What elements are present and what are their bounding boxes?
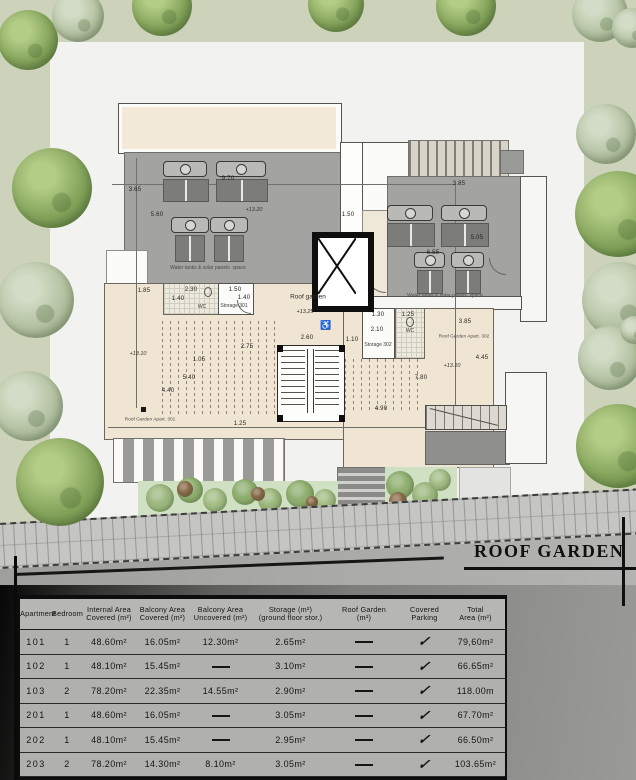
- roof-right-block: [500, 150, 524, 174]
- table-cell: [329, 735, 399, 745]
- check-icon: ✓: [417, 633, 432, 650]
- table-cell: 14.30m²: [136, 759, 189, 769]
- column-marker: [141, 407, 146, 412]
- table-body: 101148.60m²16.05m²12.30m²2.65m²✓79,60m²1…: [20, 630, 505, 777]
- water-tank: [216, 161, 266, 177]
- page-title: ROOF GARDEN: [474, 541, 624, 562]
- tree: [436, 0, 496, 36]
- table-cell: 2.90m²: [252, 686, 329, 696]
- table-cell: 48.10m²: [82, 735, 136, 745]
- table-cell: 1: [52, 661, 82, 671]
- dimension-label: 3.85: [459, 319, 471, 325]
- water-tank: [163, 161, 207, 177]
- core-strip: [340, 142, 364, 234]
- check-icon: ✓: [417, 658, 432, 675]
- table-cell: [329, 710, 399, 720]
- tank-circle-icon: [236, 164, 247, 175]
- dimension-label: 6.55: [427, 250, 439, 256]
- dimension-label: 1.10: [346, 337, 358, 343]
- pergola-right: [345, 358, 423, 410]
- table-cell: ✓: [399, 633, 450, 650]
- table-cell: 15.45m²: [136, 735, 189, 745]
- parapet-right: [520, 176, 547, 322]
- table-header-cell: Bedroom: [52, 610, 82, 619]
- solar-panel: [455, 270, 481, 294]
- dimension-label: 9.70: [222, 176, 234, 182]
- table-cell: ✓: [399, 731, 450, 748]
- table-header-cell: Roof Garden (m²): [329, 606, 399, 623]
- bush: [203, 488, 227, 512]
- table-cell: 101: [20, 637, 52, 647]
- dimension-label: 1.40: [238, 295, 250, 301]
- table-row: 103278.20m²22.35m²14.55m²2.90m²✓118.00m: [20, 679, 505, 704]
- upper-terrace: [122, 107, 336, 149]
- solar-unit: [414, 252, 445, 294]
- table-header-row: ApartmentBedroomInternal Area Covered (m…: [20, 599, 505, 630]
- water-tank: [451, 252, 484, 268]
- table-header-cell: Apartment: [20, 610, 52, 619]
- schedule-panel: ApartmentBedroomInternal Area Covered (m…: [0, 585, 636, 780]
- dimension-label: 3.65: [129, 187, 141, 193]
- tank-circle-icon: [459, 208, 470, 219]
- stair-post: [339, 345, 345, 352]
- table-cell: 48.60m²: [82, 637, 136, 647]
- annotation: Water tanks & solar panels space: [407, 293, 483, 299]
- bush: [146, 484, 174, 512]
- table-cell: 3.05m²: [252, 759, 329, 769]
- dimension-label: 1.30: [372, 312, 384, 318]
- toilet-icon: [406, 317, 414, 327]
- room-label: WC: [406, 328, 414, 334]
- level-marker: +13.10: [130, 351, 147, 357]
- table-cell: 22.35m²: [136, 686, 189, 696]
- toilet-icon: [204, 287, 212, 297]
- table-row: 102148.10m²15.45m²3.10m²✓66.65m²: [20, 655, 505, 680]
- solar-panel: [216, 179, 268, 202]
- tree: [16, 438, 104, 526]
- dimension-label: 1.25: [234, 421, 246, 427]
- table-cell: ✓: [399, 658, 450, 675]
- table-cell: 79,60m²: [450, 637, 501, 647]
- room-label: Storage 301: [220, 303, 247, 309]
- annotation: Water tanks & solar panels space: [170, 265, 246, 271]
- table-cell: ✓: [399, 682, 450, 699]
- dimension-label: 1.05: [193, 357, 205, 363]
- dimension-label: 1.85: [138, 288, 150, 294]
- table-row: 202148.10m²15.45m²2.95m²✓66.50m²: [20, 728, 505, 753]
- table-row: 201148.60m²16.05m²3.05m²✓67.70m²: [20, 704, 505, 729]
- table-cell: 118.00m: [450, 686, 501, 696]
- check-icon: ✓: [417, 682, 432, 699]
- water-tank: [441, 205, 487, 221]
- dimension-label: 4.90: [375, 406, 387, 412]
- stair-post: [277, 345, 283, 352]
- tank-circle-icon: [463, 255, 474, 266]
- solar-unit: [171, 217, 209, 262]
- table-cell: 2.65m²: [252, 637, 329, 647]
- dimension-label: 1.50: [342, 212, 354, 218]
- dimension-label: 2.30: [185, 287, 197, 293]
- table-cell: [329, 759, 399, 769]
- table-cell: 103.65m²: [450, 759, 501, 769]
- check-icon: ✓: [417, 731, 432, 748]
- roof-left-notch: [106, 250, 148, 286]
- solar-panel: [387, 223, 435, 247]
- stairwell: [277, 345, 345, 422]
- stair-treads: [315, 349, 339, 405]
- apartment-label: Roof Garden Apart. 302: [439, 335, 490, 340]
- tree: [0, 10, 58, 70]
- dimension-label: 2.75: [241, 344, 253, 350]
- dash-icon: [355, 641, 373, 643]
- dimension-label: 4.40: [162, 388, 174, 394]
- bush: [177, 481, 193, 497]
- check-icon: ✓: [417, 756, 432, 773]
- solar-unit: [210, 217, 248, 262]
- dash-icon: [355, 764, 373, 766]
- table-header-cell: Storage (m²) (ground floor stor.): [252, 606, 329, 623]
- table-header-cell: Covered Parking: [399, 606, 450, 623]
- dimension-label: 5.60: [151, 212, 163, 218]
- tank-circle-icon: [224, 220, 235, 231]
- table-cell: 78.20m²: [82, 686, 136, 696]
- wheelchair-icon: ♿: [320, 320, 331, 331]
- dimension-label: 5.05: [471, 235, 483, 241]
- tank-circle-icon: [425, 255, 436, 266]
- table-cell: [189, 710, 252, 720]
- solar-panel: [163, 179, 209, 202]
- dash-icon: [212, 666, 230, 668]
- table-cell: [189, 661, 252, 671]
- stair-diagonal: [430, 408, 498, 426]
- table-cell: 202: [20, 735, 52, 745]
- table-cell: [329, 686, 399, 696]
- water-tank: [210, 217, 248, 233]
- solar-panel: [214, 235, 244, 262]
- title-border-line: [622, 517, 625, 606]
- table-cell: 12.30m²: [189, 637, 252, 647]
- table-cell: 15.45m²: [136, 661, 189, 671]
- table-cell: ✓: [399, 707, 450, 724]
- table-header-cell: Balcony Area Covered (m²): [136, 606, 189, 623]
- table-cell: 1: [52, 637, 82, 647]
- check-icon: ✓: [417, 707, 432, 724]
- pergola-left: [162, 318, 276, 414]
- table-cell: 2: [52, 759, 82, 769]
- dimension-label: 2.60: [301, 335, 313, 341]
- stair-landing-floor: [278, 420, 344, 440]
- table-cell: [189, 735, 252, 745]
- level-marker: +13.20: [246, 207, 263, 213]
- tank-circle-icon: [180, 164, 191, 175]
- tree: [52, 0, 104, 42]
- table-cell: 3.10m²: [252, 661, 329, 671]
- table-cell: 14.55m²: [189, 686, 252, 696]
- level-marker: +13.10: [444, 363, 461, 369]
- water-tank: [171, 217, 209, 233]
- table-cell: 102: [20, 661, 52, 671]
- table-header-cell: Internal Area Covered (m²): [82, 606, 136, 623]
- dimension-label: 7.80: [415, 375, 427, 381]
- dash-icon: [355, 715, 373, 717]
- exterior-stair: [425, 405, 507, 430]
- tree: [132, 0, 192, 36]
- solar-panel: [417, 270, 443, 294]
- table-header-cell: Total Area (m²): [450, 606, 501, 623]
- roof-garden-label: Roof garden: [290, 294, 326, 301]
- table-cell: 103: [20, 686, 52, 696]
- table-cell: 8.10m²: [189, 759, 252, 769]
- table-cell: 48.10m²: [82, 661, 136, 671]
- tree: [575, 171, 636, 257]
- table-cell: 3.05m²: [252, 710, 329, 720]
- tree: [0, 262, 74, 338]
- room-label: Storage 302: [364, 342, 391, 348]
- gray-deck: [425, 431, 510, 465]
- apartment-label: Roof Garden Apart. 301: [125, 418, 176, 423]
- table-header-cell: Balcony Area Uncovered (m²): [189, 606, 252, 623]
- solar-unit: [387, 205, 433, 247]
- dash-icon: [355, 666, 373, 668]
- tank-circle-icon: [405, 208, 416, 219]
- pergola-slats-top: [408, 140, 509, 178]
- site-plan: 3.65 5.60 9.70 1.50 +13.20 Water tanks &…: [0, 0, 636, 597]
- dimension-label: 5.40: [183, 375, 195, 381]
- dimension-line: [108, 427, 458, 428]
- table-row: 101148.60m²16.05m²12.30m²2.65m²✓79,60m²: [20, 630, 505, 655]
- table-cell: [329, 661, 399, 671]
- bush: [429, 469, 451, 491]
- solar-unit: [451, 252, 484, 294]
- table-cell: 78.20m²: [82, 759, 136, 769]
- tree: [576, 404, 636, 488]
- dash-icon: [355, 739, 373, 741]
- table-cell: 2: [52, 686, 82, 696]
- area-schedule-table: ApartmentBedroomInternal Area Covered (m…: [16, 595, 507, 780]
- stair-post: [339, 415, 345, 422]
- dimension-label: 3.85: [453, 181, 465, 187]
- dimension-label: 1.50: [229, 287, 241, 293]
- tree: [12, 148, 92, 228]
- water-tank: [387, 205, 433, 221]
- dimension-label: 1.40: [172, 296, 184, 302]
- stair-treads: [281, 349, 305, 405]
- pergola-slats-bottom: [113, 438, 285, 483]
- room-right-edge: [505, 372, 547, 464]
- sheet-border-line: [14, 556, 17, 780]
- dimension-line: [136, 158, 137, 408]
- table-cell: ✓: [399, 756, 450, 773]
- elevator-x-icon: [318, 238, 356, 294]
- tank-circle-icon: [185, 220, 196, 231]
- table-cell: 66.65m²: [450, 661, 501, 671]
- table-cell: 2.95m²: [252, 735, 329, 745]
- solar-panel: [175, 235, 205, 262]
- table-cell: 1: [52, 735, 82, 745]
- roof-garden-plan-sheet: 3.65 5.60 9.70 1.50 +13.20 Water tanks &…: [0, 0, 636, 780]
- dash-icon: [212, 739, 230, 741]
- solar-unit: [163, 161, 207, 202]
- dimension-label: 4.45: [476, 355, 488, 361]
- dimension-label: 2.10: [371, 327, 383, 333]
- table-cell: 48.60m²: [82, 710, 136, 720]
- title-underline: [464, 567, 636, 570]
- table-cell: 66.50m²: [450, 735, 501, 745]
- table-row: 203278.20m²14.30m²8.10m²3.05m²✓103.65m²: [20, 753, 505, 778]
- table-cell: 67.70m²: [450, 710, 501, 720]
- table-cell: 16.05m²: [136, 637, 189, 647]
- stair-spine: [307, 349, 314, 413]
- dash-icon: [355, 690, 373, 692]
- dash-icon: [212, 715, 230, 717]
- table-cell: 203: [20, 759, 52, 769]
- tree: [576, 104, 636, 164]
- table-cell: 201: [20, 710, 52, 720]
- stair-post: [277, 415, 283, 422]
- table-cell: 1: [52, 710, 82, 720]
- tree: [308, 0, 364, 32]
- table-cell: 16.05m²: [136, 710, 189, 720]
- table-cell: [329, 637, 399, 647]
- room-label: WC: [198, 304, 206, 310]
- bush: [251, 487, 265, 501]
- level-marker: +13.25: [297, 309, 314, 315]
